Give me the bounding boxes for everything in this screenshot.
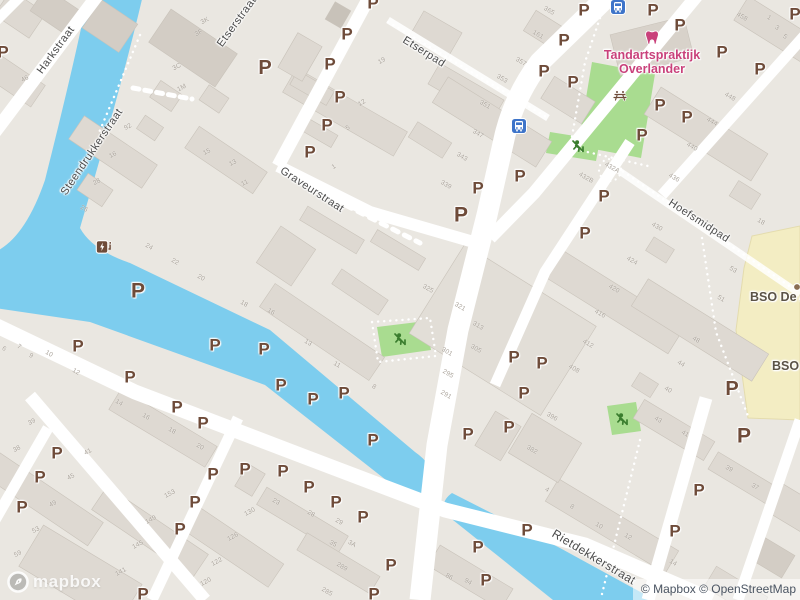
playground-slide-icon[interactable] — [614, 411, 631, 428]
parking-icon[interactable]: P — [558, 32, 569, 49]
house-number: 10 — [594, 521, 604, 531]
parking-icon[interactable]: P — [277, 463, 288, 480]
house-number: 4 — [544, 486, 551, 494]
house-number: 24 — [144, 242, 154, 252]
mapbox-logo-icon — [7, 571, 29, 593]
parking-icon[interactable]: P — [654, 97, 665, 114]
parking-icon[interactable]: P — [518, 385, 529, 402]
house-number: 141 — [114, 566, 127, 578]
parking-icon[interactable]: P — [674, 17, 685, 34]
house-number: 94 — [463, 577, 473, 587]
parking-icon[interactable]: P — [189, 494, 200, 511]
parking-icon[interactable]: P — [0, 44, 9, 61]
parking-icon[interactable]: P — [304, 144, 315, 161]
house-number: 53 — [31, 525, 41, 535]
house-number: 48 — [691, 335, 701, 345]
dentist-label-line1: Tandartspraktijk — [604, 48, 700, 62]
house-number: 23 — [271, 497, 281, 507]
parking-icon[interactable]: P — [338, 385, 349, 402]
parking-icon[interactable]: P — [368, 586, 379, 600]
parking-icon[interactable]: P — [209, 337, 220, 354]
parking-icon[interactable]: P — [579, 225, 590, 242]
parking-icon[interactable]: P — [598, 188, 609, 205]
house-number: 8 — [371, 383, 378, 391]
parking-icon[interactable]: P — [341, 26, 352, 43]
house-number: 16 — [141, 412, 151, 422]
house-number: 301 — [440, 346, 453, 358]
house-number: 122 — [210, 556, 223, 568]
house-number: 20 — [195, 442, 205, 452]
parking-icon[interactable]: P — [454, 205, 468, 226]
house-number: 285 — [320, 586, 333, 598]
house-number: 305 — [469, 343, 482, 355]
street-label: Etserpad — [400, 34, 447, 70]
house-number: 44 — [676, 359, 686, 369]
parking-icon[interactable]: P — [258, 58, 271, 78]
house-number: 396 — [545, 411, 558, 423]
parking-icon[interactable]: P — [324, 56, 335, 73]
house-number: 12 — [623, 532, 633, 542]
house-number: 5 — [782, 33, 789, 41]
house-number: 28 — [306, 509, 316, 519]
parking-icon[interactable]: P — [514, 168, 525, 185]
house-number: 321 — [453, 301, 466, 313]
parking-icon[interactable]: P — [472, 180, 483, 197]
house-number: 3 — [774, 24, 781, 32]
house-number: 59 — [13, 549, 23, 559]
house-number: 35 — [328, 539, 338, 549]
house-number: 416 — [593, 308, 606, 320]
house-number: 40 — [663, 385, 673, 395]
house-number: 440 — [685, 141, 698, 153]
dentist-label: TandartspraktijkOverlander — [604, 48, 700, 76]
house-number: 45 — [66, 472, 76, 482]
house-number: 382 — [525, 444, 538, 456]
house-number: 325 — [421, 283, 434, 295]
house-number: 28 — [92, 177, 102, 187]
parking-icon[interactable]: P — [137, 586, 148, 600]
house-number: 430 — [650, 221, 663, 233]
house-number: 458 — [735, 11, 748, 23]
house-number: 448 — [723, 91, 736, 103]
parking-icon[interactable]: P — [508, 349, 519, 366]
parking-icon[interactable]: P — [578, 2, 589, 19]
house-number: 432A — [603, 161, 620, 175]
dentist-tooth-icon[interactable] — [645, 30, 660, 46]
house-number: 16 — [266, 307, 276, 317]
house-number: 11 — [240, 178, 250, 188]
parking-icon[interactable]: P — [239, 461, 250, 478]
house-number: 145 — [131, 539, 144, 551]
house-number: 289 — [335, 561, 348, 573]
house-number: 3K — [200, 16, 211, 26]
playground-slide-icon[interactable] — [570, 138, 587, 155]
house-number: 14 — [668, 558, 678, 568]
house-number: 20 — [196, 273, 206, 283]
house-number: 14 — [114, 398, 124, 408]
house-number: 18 — [756, 217, 766, 227]
house-number: 357 — [514, 56, 527, 68]
map-canvas[interactable]: HarkstraatSteendrukkerstraatEtserstraatE… — [0, 0, 800, 600]
bus-stop-icon[interactable] — [610, 0, 626, 15]
house-number: 38 — [12, 444, 22, 454]
house-number: 3A — [347, 539, 358, 549]
house-number: 49 — [48, 499, 58, 509]
house-number: 347 — [471, 128, 484, 140]
house-number: 10 — [44, 349, 54, 359]
parking-icon[interactable]: P — [789, 6, 800, 23]
map-symbol-overlay: HarkstraatSteendrukkerstraatEtserstraatE… — [0, 0, 800, 600]
house-number: 11 — [332, 360, 342, 370]
house-number: 39 — [724, 464, 734, 474]
house-number: 37 — [750, 482, 760, 492]
school-label: BSO H — [772, 359, 800, 373]
house-number: 130 — [243, 506, 256, 518]
house-number: 120 — [199, 576, 212, 588]
parking-icon[interactable]: P — [171, 399, 182, 416]
parking-icon[interactable]: P — [124, 369, 135, 386]
house-number: 43 — [653, 415, 663, 425]
house-number: 149 — [144, 514, 157, 526]
house-number: 22 — [170, 257, 180, 267]
map-attribution[interactable]: © Mapbox © OpenStreetMap — [633, 579, 800, 600]
parking-icon[interactable]: P — [636, 127, 647, 144]
parking-icon[interactable]: P — [303, 479, 314, 496]
house-number: 39 — [27, 417, 37, 427]
dentist-label-line2: Overlander — [604, 62, 700, 76]
house-number: 1 — [331, 163, 338, 171]
parking-icon[interactable]: P — [462, 426, 473, 443]
house-number: 6 — [1, 345, 8, 353]
poi-dot-icon[interactable] — [793, 283, 800, 292]
street-label: Hoefsmidpad — [666, 197, 732, 245]
house-number: 420 — [607, 283, 620, 295]
parking-icon[interactable]: P — [321, 117, 332, 134]
ev-charging-icon[interactable] — [96, 240, 113, 255]
house-number: 291 — [439, 389, 452, 401]
parking-icon[interactable]: P — [385, 557, 396, 574]
house-number: 51 — [716, 294, 726, 304]
house-number: 153 — [163, 488, 176, 500]
house-number: 444 — [705, 116, 718, 128]
house-number: 8 — [569, 503, 576, 511]
parking-icon[interactable]: P — [647, 2, 658, 19]
house-number: 19 — [377, 56, 387, 66]
house-number: 343 — [455, 151, 468, 163]
house-number: 41 — [680, 429, 690, 439]
house-number: 365 — [542, 5, 555, 17]
parking-icon[interactable]: P — [521, 522, 532, 539]
house-number: 5 — [345, 124, 352, 132]
house-number: 339 — [439, 179, 452, 191]
parking-icon[interactable]: P — [131, 281, 145, 302]
parking-icon[interactable]: P — [480, 572, 491, 589]
house-number: 3F — [194, 28, 204, 38]
house-number: 12 — [357, 98, 367, 108]
parking-icon[interactable]: P — [567, 74, 578, 91]
bus-stop-icon[interactable] — [511, 118, 527, 134]
parking-icon[interactable]: P — [737, 426, 751, 447]
house-number: 26 — [79, 204, 89, 214]
parking-icon[interactable]: P — [716, 44, 727, 61]
parking-icon[interactable]: P — [51, 445, 62, 462]
house-number: 13 — [228, 158, 238, 168]
house-number: 86 — [444, 572, 454, 582]
parking-icon[interactable]: P — [538, 63, 549, 80]
mapbox-logo[interactable]: mapbox — [7, 571, 101, 593]
parking-icon[interactable]: P — [536, 355, 547, 372]
house-number: 436 — [667, 172, 680, 184]
house-number: 3C — [172, 62, 183, 72]
house-number: 1 — [766, 14, 773, 22]
parking-icon[interactable]: P — [307, 391, 318, 408]
parking-icon[interactable]: P — [174, 521, 185, 538]
parking-icon[interactable]: P — [334, 89, 345, 106]
parking-icon[interactable]: P — [669, 523, 680, 540]
house-number: 7 — [16, 343, 23, 351]
parking-icon[interactable]: P — [34, 469, 45, 486]
house-number: 432B — [577, 171, 594, 185]
parking-icon[interactable]: P — [472, 539, 483, 556]
house-number: 12 — [71, 367, 81, 377]
house-number: 41 — [83, 447, 93, 457]
parking-icon[interactable]: P — [693, 482, 704, 499]
house-number: 29 — [334, 517, 344, 527]
picnic-table-icon[interactable] — [613, 90, 628, 102]
house-number: 53 — [728, 265, 738, 275]
house-number: 92 — [123, 122, 133, 132]
parking-icon[interactable]: P — [357, 509, 368, 526]
street-label: Graveurstraat — [278, 165, 346, 215]
parking-icon[interactable]: P — [503, 419, 514, 436]
mapbox-wordmark: mapbox — [33, 572, 101, 592]
street-label: Etserstraat — [215, 0, 259, 49]
house-number: 353 — [495, 73, 508, 85]
parking-icon[interactable]: P — [16, 499, 27, 516]
house-number: 1M — [176, 83, 188, 94]
street-label: Harkstraat — [35, 24, 77, 76]
house-number: 13 — [303, 338, 313, 348]
house-number: 9 — [28, 352, 35, 360]
house-number: 412 — [581, 338, 594, 350]
parking-icon[interactable]: P — [367, 0, 378, 12]
parking-icon[interactable]: P — [681, 109, 692, 126]
house-number: 424 — [625, 255, 638, 267]
house-number: 408 — [567, 363, 580, 375]
house-number: 46 — [20, 74, 30, 84]
house-number: 295 — [441, 368, 454, 380]
parking-icon[interactable]: P — [197, 415, 208, 432]
house-number: 18 — [167, 426, 177, 436]
parking-icon[interactable]: P — [725, 379, 738, 399]
house-number: 18 — [239, 299, 249, 309]
school-label: BSO De A — [750, 290, 800, 304]
house-number: 161 — [531, 29, 544, 41]
house-number: 313 — [471, 320, 484, 332]
house-number: 351 — [478, 99, 491, 111]
parking-icon[interactable]: P — [72, 338, 83, 355]
parking-icon[interactable]: P — [754, 61, 765, 78]
parking-icon[interactable]: P — [258, 341, 269, 358]
parking-icon[interactable]: P — [207, 466, 218, 483]
house-number: 126 — [226, 531, 239, 543]
parking-icon[interactable]: P — [330, 494, 341, 511]
house-number: 16 — [108, 150, 118, 160]
parking-icon[interactable]: P — [275, 377, 286, 394]
house-number: 15 — [202, 147, 212, 157]
playground-slide-icon[interactable] — [392, 331, 409, 348]
parking-icon[interactable]: P — [367, 432, 378, 449]
